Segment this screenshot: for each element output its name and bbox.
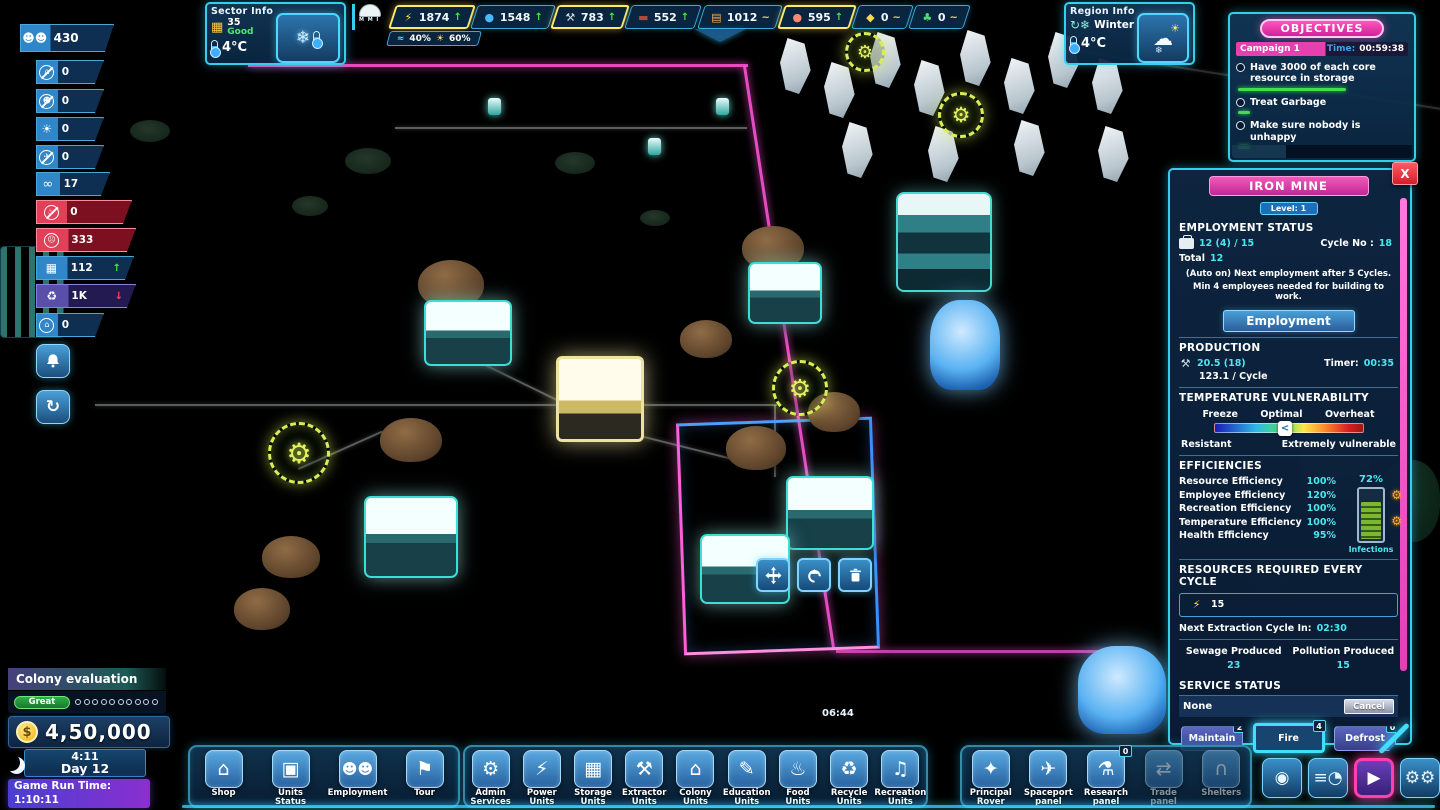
time-value: 00:59:38 [1359,44,1404,54]
unhappy-icon: ☹ [44,233,59,248]
sector-climate-button[interactable]: ❄ [276,13,340,63]
iron-mine-building[interactable] [556,356,644,442]
employment-heading: EMPLOYMENT STATUS [1179,222,1398,234]
next-extraction-value: 02:30 [1317,623,1347,634]
toolbar-label: Shelters [1201,789,1241,798]
resource-value: 1874 [419,11,450,24]
ore-mound [380,418,442,462]
service-status-value: None [1183,701,1212,712]
rock [130,120,170,142]
objective-checkbox[interactable] [1236,98,1245,107]
trend-arrow: ↑ [681,12,689,23]
stat-no-food[interactable]: ♨ 0 [36,200,132,224]
toolbar-item-shop[interactable]: ⌂ Shop [196,750,252,798]
climate-sub-bar: ≈ 40% ☀ 60% [386,31,482,46]
level-badge: Level: 1 [1260,202,1318,215]
maintain-label: Maintain [1189,733,1236,744]
admin-services-icon: ⚙ [472,750,510,788]
thermometer-icon [313,31,320,46]
sector-info-panel: Sector Info ▦ 35 Good 4°C ❄ [205,2,346,65]
buildings-icon: ▦ [37,262,66,274]
total-label: Total [1179,253,1205,264]
sun-icon: ☀ [436,34,444,44]
stat-unhappy[interactable]: ☹ 333 [36,228,136,252]
infection-gauge-label: Infections [1344,545,1398,554]
extractor-units-icon: ⚒ [625,750,663,788]
objective-text: Treat Garbage [1250,97,1326,108]
resource-value: 1012 [727,11,758,24]
employment-note-1: (Auto on) Next employment after 5 Cycles… [1179,269,1398,280]
runtime-label: Game Run Time: [14,780,111,792]
objective-checkbox[interactable] [1236,121,1245,130]
moon-icon [3,754,20,771]
temperature-gradient-bar: < [1214,423,1364,433]
toolbar-item-power-units[interactable]: ⚡ Power Units [517,750,567,808]
worker-bot [488,98,501,115]
clover-icon: ♣ [921,12,934,23]
thermometer-icon [1070,36,1077,51]
trend-arrow: ↑ [113,263,133,274]
rock [555,152,595,174]
ore-mound [234,588,290,630]
trend-arrow: ↓ [115,291,135,302]
money-display: $ 4,50,000 [8,716,170,748]
humidity-icon: ≈ [397,34,405,44]
sector-rating: Good [227,28,253,37]
power-icon: ⚡ [1190,599,1203,610]
efficiency-gear-icon: ⚙ [1391,488,1402,502]
wind-turbine[interactable] [1096,126,1130,182]
wind-turbine[interactable] [1090,58,1124,114]
stat-explorers[interactable]: ∞ 17 [36,172,110,196]
gear-marker-icon[interactable] [845,32,885,72]
stat-locked-shelter[interactable]: ⌂ 0 [36,313,104,337]
sector-rating-icon: ▦ [211,21,223,34]
worker-bot [716,98,729,115]
total-value: 12 [1210,253,1223,264]
resource-bar: M M I ⚡ 1874 ↑ ● 1548 ↑ ⚒ 783 ↑ ▬ 552 ↑ … [352,4,967,30]
employment-current: 12 (4) / 15 [1199,238,1254,249]
shelters-icon: ∩ [1202,750,1240,788]
timer-label: Timer: [1324,358,1359,369]
rock [292,196,328,216]
astronaut-helmet-icon[interactable]: M M I [352,4,386,30]
binoculars-icon: ∞ [37,178,59,191]
shop-icon: ⌂ [205,750,243,788]
stat-value: 0 [57,123,69,135]
storage-building[interactable] [786,476,874,550]
tour-icon: ⚑ [406,750,444,788]
region-temperature: 4°C [1081,36,1106,51]
resource-chip-clay[interactable]: ▬ 552 ↑ [624,5,702,29]
freeze-label: Freeze [1203,409,1238,420]
trend-arrow: ↑ [454,12,462,23]
rover-unit[interactable] [930,300,1000,390]
trend-arrow: ~ [761,12,769,23]
humidity-value: 40% [410,34,432,44]
optimal-label: Optimal [1260,409,1302,420]
toolbar-label: Tour [414,789,435,798]
mmi-label: M M I [359,17,386,23]
no-food-icon: ♨ [44,205,59,220]
toolbar-item-education-units[interactable]: ✎ Education Units [722,750,772,808]
gear-marker-icon[interactable] [268,422,330,484]
toolbar-label: Shop [211,789,235,798]
iron-icon: ⚒ [1179,358,1192,369]
employment-note-2: Min 4 employees needed for building to w… [1179,282,1398,303]
objective-item: Have 3000 of each core resource in stora… [1236,62,1408,85]
weather-button[interactable]: ☁ ☀ ❄ [1137,13,1189,63]
sewage-value: 23 [1227,660,1240,671]
gear-marker-icon[interactable] [772,360,828,416]
eff-value: 100% [1307,476,1344,487]
seasons-icon: ↻❄ [1070,18,1090,32]
fire-label: Fire [1278,733,1299,744]
gear-marker-icon[interactable] [938,92,984,138]
trend-arrow: ↑ [535,12,543,23]
territory-border [836,650,1106,653]
stat-value: 112 [66,262,93,274]
employment-icon: ☻☻ [339,750,377,788]
stat-value: 0 [57,95,69,107]
resource-value: 783 [581,11,604,24]
delete-button[interactable] [838,558,872,592]
spaceport-icon: ✈ [1029,750,1067,788]
toolbar-item-colony-units[interactable]: ⌂ Colony Units [670,750,720,808]
thermometer-icon [211,40,218,55]
resource-chip-water[interactable]: ● 1548 ↑ [470,5,556,29]
trend-arrow: ↑ [835,12,843,23]
objective-text: Have 3000 of each core resource in stora… [1250,62,1408,85]
toolbar-item-principal-rover[interactable]: ✦ Principal Rover [963,750,1019,808]
iron-icon: ⚒ [564,12,577,23]
storage-units-icon: ▦ [574,750,612,788]
colony-eval-title: Colony evaluation [8,668,166,690]
toolbar-item-recreation-units[interactable]: ♫ Recreation Units [875,750,925,808]
eye-icon: ◉ [1275,768,1290,788]
wind-turbine[interactable] [840,122,874,178]
day-counter: Day 12 [61,762,109,775]
water-icon: ● [483,12,496,23]
resource-chip-power[interactable]: ⚡ 1874 ↑ [388,5,476,29]
resistant-label: Resistant [1181,439,1232,450]
resource-chip-food[interactable]: ▤ 1012 ~ [697,5,783,29]
sunlight-value: 60% [449,34,471,44]
service-status-box: None Cancel [1179,695,1398,717]
service-status-heading: SERVICE STATUS [1179,680,1398,692]
toolbar-item-extractor-units[interactable]: ⚒ Extractor Units [619,750,669,808]
topbar-notch [694,29,746,42]
toolbar-item-recycle-units[interactable]: ♻ Recycle Units [824,750,874,808]
sewage-label: Sewage Produced [1186,646,1282,657]
colony-units-icon: ⌂ [676,750,714,788]
storage-building[interactable] [748,262,822,324]
food-icon: ▤ [710,12,723,23]
wind-turbine[interactable] [778,38,812,94]
toolbar-group-panels: ✦ Principal Rover ✈ Spaceport panel ⚗ 0 … [960,745,1252,808]
power-icon: ⚡ [402,12,415,23]
units-status-icon: ▣ [272,750,310,788]
colony-rating-row: Great [8,691,166,713]
recreation-units-icon: ♫ [881,750,919,788]
timer-value: 00:35 [1364,358,1394,369]
resource-value: 552 [654,11,677,24]
building-title: IRON MINE [1209,176,1369,196]
education-units-icon: ✎ [728,750,766,788]
ore-mound [680,320,732,358]
move-icon [764,566,783,585]
settings-button[interactable]: ⚙⚙ [1400,758,1440,798]
production-heading: PRODUCTION [1179,342,1398,354]
no-home-icon: ⌂ [39,65,54,80]
eff-label: Temperature Efficiency [1179,517,1302,528]
defrost-label: Defrost [1345,733,1385,744]
production-amount: 20.5 (18) [1197,358,1246,369]
resource-chip-luck[interactable]: ♣ 0 ~ [908,5,971,29]
toolbar-base-line [182,805,1435,808]
temperature-slider[interactable]: < [1278,421,1292,436]
rotate-icon: ↻ [46,397,60,417]
panel-accent-stripe [1400,198,1407,671]
eff-value: 100% [1307,503,1344,514]
stat-no-home[interactable]: ⌂ 0 [36,60,104,84]
objective-checkbox[interactable] [1236,63,1245,72]
coin-icon: $ [16,721,38,743]
toolbar-item-units-status[interactable]: ▣ Units Status [263,750,319,808]
ore-mound [262,536,320,578]
infection-gauge-value: 72% [1344,474,1398,485]
toolbar-item-research-panel[interactable]: ⚗ 0 Research panel [1078,750,1134,808]
game-viewport: 06:44 Sector Info ▦ 35 Good 4°C ❄ M M I … [0,0,1440,810]
next-extraction-label: Next Extraction Cycle In: [1179,623,1312,634]
game-runtime: Game Run Time: 1:10:11 [8,779,150,808]
play-pause-button[interactable]: ▶ [1354,758,1394,798]
cycle-refresh-button[interactable]: ↻ [36,390,70,424]
objective-item: Make sure nobody is unhappy [1236,120,1408,143]
objective-text: Make sure nobody is unhappy [1250,120,1408,143]
resource-value: 595 [808,11,831,24]
view-mode-button[interactable]: ◉ [1262,758,1302,798]
toolbar-group-main: ⌂ Shop ▣ Units Status ☻☻ Employment ⚑ To… [188,745,460,808]
objective-item: Treat Garbage [1236,97,1408,108]
clay-icon: ▬ [637,12,650,23]
efficiency-gear-icon: ⚙ [1391,514,1402,528]
stat-infection[interactable]: ☀ 0 [36,117,104,141]
garbage-icon: ♻ [37,290,66,302]
eff-label: Resource Efficiency [1179,476,1283,487]
objectives-title: OBJECTIVES [1260,19,1384,38]
eff-label: Recreation Efficiency [1179,503,1291,514]
region-season: Winter [1094,19,1134,31]
resource-chip-meat[interactable]: ● 595 ↑ [777,5,857,29]
fire-badge: 4 [1313,720,1326,732]
temperature-heading: TEMPERATURE VULNERABILITY [1179,392,1398,404]
snowflake-icon: ❄ [296,28,310,48]
trend-arrow: ↑ [608,12,616,23]
stat-value: 0 [57,319,69,331]
locked-home-icon: ⌂ [39,318,54,333]
wind-turbine[interactable] [1012,120,1046,176]
trend-arrow: ~ [893,12,901,23]
worker-bot [648,138,661,155]
notifications-button[interactable] [36,344,70,378]
rover-unit[interactable] [1078,646,1166,734]
system-controls: ◉ ≡◔ ▶ ⚙⚙ [1262,758,1440,798]
storage-building[interactable] [424,300,512,366]
no-person-icon: ☻ [39,94,54,109]
eff-label: Employee Efficiency [1179,490,1285,501]
upgrade-icon [805,566,824,585]
world-timer-label: 06:44 [822,708,854,719]
region-info-panel: Region Info ↻❄ Winter 4°C ☁ ☀ ❄ [1064,2,1195,65]
large-structure[interactable] [896,192,992,292]
cycle-label: Cycle No : [1320,238,1373,249]
stat-value: 430 [49,31,79,45]
infection-gauge [1357,487,1385,543]
timer-icon: ≡◔ [1313,768,1342,788]
upgrade-button[interactable] [797,558,831,592]
stat-value: 0 [57,66,69,78]
play-icon: ▶ [1367,768,1380,788]
stat-population[interactable]: ☻☻ 430 [20,24,114,52]
gold-icon: ◆ [864,12,877,23]
toolbar-item-spaceport-panel[interactable]: ✈ Spaceport panel [1020,750,1076,808]
ore-mound [726,426,786,470]
campaign-label: Campaign 1 [1240,44,1300,54]
sector-temperature: 4°C [222,40,247,55]
power-cost-value: 15 [1211,599,1224,610]
maintain-badge: 2 [1233,721,1246,733]
stat-no-transport[interactable]: ✈ 0 [36,145,104,169]
resource-value: 0 [938,11,946,24]
money-amount: 4,50,000 [45,720,152,744]
rating-dots [75,699,158,705]
objectives-panel: OBJECTIVES Campaign 1 Time: 00:59:38 Hav… [1228,12,1416,162]
infection-icon: ☀ [37,123,57,135]
briefcase-icon [1179,238,1194,249]
resources-required-heading: RESOURCES REQUIRED EVERY CYCLE [1179,564,1398,588]
recycle-units-icon: ♻ [830,750,868,788]
no-transport-icon: ✈ [39,150,54,165]
resource-value: 1548 [500,11,531,24]
pollution-value: 15 [1337,660,1350,671]
toolbar-item-food-units[interactable]: ♨ Food Units [773,750,823,808]
pipe [395,127,747,129]
eff-value: 100% [1307,517,1344,528]
toolbar-item-shelters[interactable]: ∩ Shelters [1193,750,1249,798]
objectives-footer [1232,145,1412,158]
pollution-label: Pollution Produced [1292,646,1394,657]
storage-building[interactable] [364,496,458,578]
toolbar-item-tour[interactable]: ⚑ Tour [397,750,453,798]
research-badge: 0 [1119,745,1132,757]
colony-rating-badge: Great [14,696,70,709]
stat-value: 0 [65,206,77,218]
principal-rover-icon: ✦ [972,750,1010,788]
time-label: Time: [1327,44,1355,54]
resource-value: 0 [881,11,889,24]
wind-turbine[interactable] [822,62,856,118]
rock [345,148,391,174]
fire-button[interactable]: Fire 4 [1253,723,1325,753]
power-units-icon: ⚡ [523,750,561,788]
snow-cloud-icon: ☁ ☀ ❄ [1153,28,1173,49]
toolbar-item-employment[interactable]: ☻☻ Employment [330,750,386,798]
eff-label: Health Efficiency [1179,530,1269,541]
wind-turbine[interactable] [958,30,992,86]
efficiencies-heading: EFFICIENCIES [1179,460,1262,472]
per-cycle-value: 123.1 / Cycle [1199,371,1398,382]
cycle-value: 18 [1379,238,1392,249]
runtime-value: 1:10:11 [14,794,59,806]
meat-icon: ● [791,12,804,23]
toolbar-item-admin-services[interactable]: ⚙ Admin Services [466,750,516,808]
objective-progress [1238,88,1346,91]
move-button[interactable] [756,558,790,592]
stat-no-person[interactable]: ☻ 0 [36,89,104,113]
food-units-icon: ♨ [779,750,817,788]
game-clock: 4:11 Day 12 [24,749,146,777]
trend-arrow: ~ [950,12,958,23]
toolbar-item-trade-panel[interactable]: ⇄ Trade panel [1136,750,1192,808]
eff-value: 120% [1307,490,1344,501]
overheat-label: Overheat [1325,409,1375,420]
stat-value: 1K [66,290,86,302]
delete-icon [847,567,864,584]
toolbar-label: Employment [328,789,388,798]
population-icon: ☻☻ [21,32,49,44]
cycle-cost-box: ⚡ 15 [1179,593,1398,617]
eff-value: 95% [1313,530,1344,541]
stat-value: 0 [57,151,69,163]
close-button[interactable]: X [1392,162,1418,185]
pipe [95,404,777,406]
trade-icon: ⇄ [1145,750,1183,788]
stat-value: 333 [66,234,93,246]
toolbar-item-storage-units[interactable]: ▦ Storage Units [568,750,618,808]
resource-chip-gold[interactable]: ◆ 0 ~ [851,5,914,29]
resource-chip-iron[interactable]: ⚒ 783 ↑ [550,5,630,29]
building-context-toolbar [756,558,872,592]
stat-buildings[interactable]: ▦ 112 ↑ [36,256,134,280]
objective-progress [1238,111,1250,114]
iron-mine-panel: X IRON MINE Level: 1 EMPLOYMENT STATUS 1… [1168,168,1412,745]
speed-timer-button[interactable]: ≡◔ [1308,758,1348,798]
bell-icon [44,352,62,370]
stat-value: 17 [59,178,79,190]
gears-icon: ⚙⚙ [1405,768,1435,788]
stat-garbage[interactable]: ♻ 1K ↓ [36,284,136,308]
wind-turbine[interactable] [1002,58,1036,114]
toolbar-group-units: ⚙ Admin Services ⚡ Power Units ▦ Storage… [463,745,928,808]
vulnerable-label: Extremely vulnerable [1282,439,1396,450]
employment-button[interactable]: Employment [1223,310,1355,332]
cancel-button[interactable]: Cancel [1344,699,1394,714]
rock [640,210,670,226]
